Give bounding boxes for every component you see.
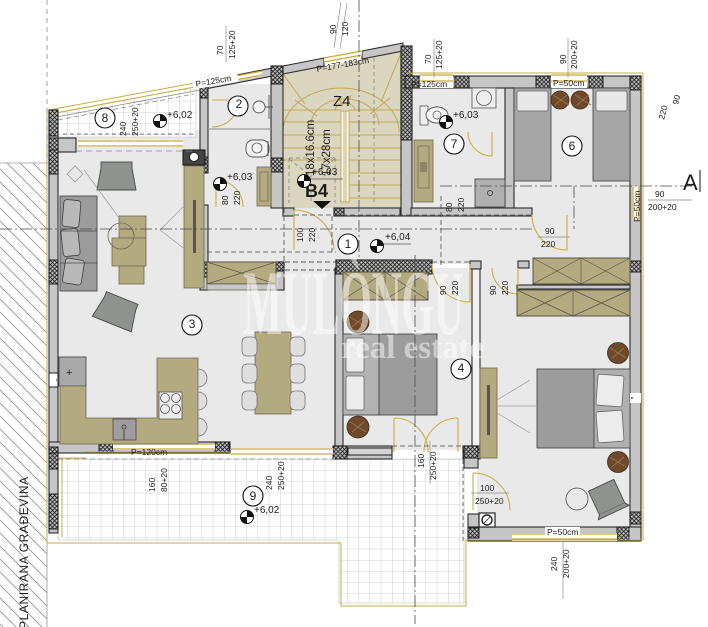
svg-text:100: 100 bbox=[480, 483, 494, 493]
svg-text:7: 7 bbox=[451, 137, 458, 151]
svg-text:+6,02: +6,02 bbox=[167, 110, 193, 121]
svg-text:200+20: 200+20 bbox=[561, 549, 571, 578]
svg-text:Z4: Z4 bbox=[333, 93, 351, 110]
svg-text:+6,04: +6,04 bbox=[385, 232, 411, 243]
svg-text:+6,03: +6,03 bbox=[312, 167, 338, 178]
svg-text:250+20: 250+20 bbox=[276, 461, 286, 490]
svg-text:200+20: 200+20 bbox=[648, 202, 677, 212]
svg-text:240: 240 bbox=[549, 557, 559, 571]
svg-text:90: 90 bbox=[438, 285, 448, 295]
svg-text:220: 220 bbox=[450, 281, 460, 295]
svg-text:220: 220 bbox=[232, 191, 242, 205]
svg-text:200+20: 200+20 bbox=[569, 40, 579, 69]
svg-text:220: 220 bbox=[456, 198, 466, 212]
svg-text:125+20: 125+20 bbox=[227, 30, 237, 59]
svg-text:8: 8 bbox=[102, 111, 109, 125]
svg-text:P=50cm: P=50cm bbox=[632, 191, 642, 222]
svg-text:80: 80 bbox=[220, 195, 230, 205]
svg-text:80: 80 bbox=[444, 202, 454, 212]
svg-text:P=50cm: P=50cm bbox=[553, 78, 584, 88]
svg-text:80+20: 80+20 bbox=[159, 468, 169, 492]
svg-text:120: 120 bbox=[340, 22, 350, 36]
svg-text:160: 160 bbox=[416, 454, 426, 468]
svg-text:240: 240 bbox=[264, 476, 274, 490]
svg-text:A: A bbox=[683, 170, 698, 195]
svg-text:250+20: 250+20 bbox=[475, 496, 504, 506]
svg-text:1: 1 bbox=[345, 237, 352, 251]
svg-text:90: 90 bbox=[328, 24, 338, 34]
svg-text:220: 220 bbox=[541, 239, 555, 249]
svg-text:220: 220 bbox=[500, 281, 510, 295]
svg-text:6: 6 bbox=[569, 139, 576, 153]
svg-text:9: 9 bbox=[250, 489, 257, 503]
svg-text:+6,03: +6,03 bbox=[227, 172, 253, 183]
svg-text:+6,02: +6,02 bbox=[254, 505, 280, 516]
svg-text:4: 4 bbox=[458, 361, 465, 375]
svg-text:250+20: 250+20 bbox=[428, 451, 438, 480]
svg-text:+: + bbox=[66, 367, 72, 379]
svg-text:70: 70 bbox=[215, 45, 225, 55]
svg-text:220: 220 bbox=[307, 228, 317, 242]
svg-text:160: 160 bbox=[147, 478, 157, 492]
svg-text:P=120cm: P=120cm bbox=[131, 447, 167, 457]
svg-text:70: 70 bbox=[423, 54, 433, 64]
svg-text:+6,03: +6,03 bbox=[453, 110, 479, 121]
svg-text:90: 90 bbox=[545, 226, 555, 236]
svg-text:P=50cm: P=50cm bbox=[547, 527, 578, 537]
svg-text:PLANIRANA GRAĐEVINA: PLANIRANA GRAĐEVINA bbox=[17, 476, 31, 627]
svg-text:125+20: 125+20 bbox=[434, 40, 444, 69]
svg-text:90: 90 bbox=[558, 54, 568, 64]
svg-text:100: 100 bbox=[295, 228, 305, 242]
svg-text:2: 2 bbox=[236, 97, 243, 111]
svg-text:3: 3 bbox=[189, 317, 196, 331]
svg-text:P=125cm: P=125cm bbox=[411, 79, 447, 89]
svg-text:90: 90 bbox=[655, 189, 665, 199]
svg-text:250+20: 250+20 bbox=[130, 107, 140, 136]
svg-text:90: 90 bbox=[488, 285, 498, 295]
svg-text:240: 240 bbox=[118, 122, 128, 136]
